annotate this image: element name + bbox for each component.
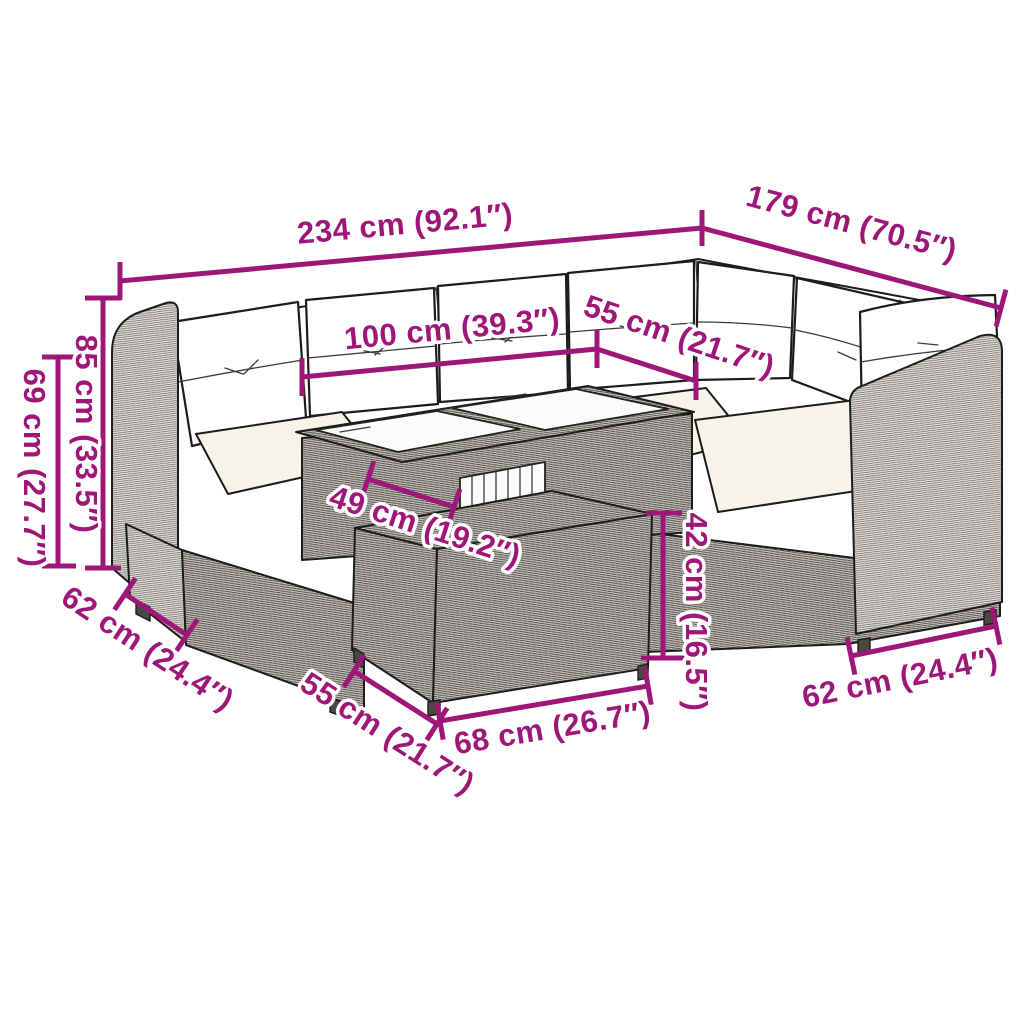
dimension-label-back-height: 85 cm (33.5″) xyxy=(69,335,104,534)
product-dimension-diagram: 234 cm (92.1″) 179 cm (70.5″) 100 cm (39… xyxy=(0,0,1024,1024)
dimension-label-stool-height: 42 cm (16.5″) xyxy=(679,513,714,712)
diagram-canvas: 234 cm (92.1″) 179 cm (70.5″) 100 cm (39… xyxy=(0,0,1024,1024)
dimension-label-overall-width: 234 cm (92.1″) xyxy=(296,196,515,250)
tick-mark xyxy=(437,702,443,739)
dimension-label-overall-depth: 179 cm (70.5″) xyxy=(743,178,961,268)
dimension-label-sofa-depth-right: 62 cm (24.4″) xyxy=(799,641,1001,715)
dimension-label-arm-height: 69 cm (27.7″) xyxy=(17,369,52,568)
